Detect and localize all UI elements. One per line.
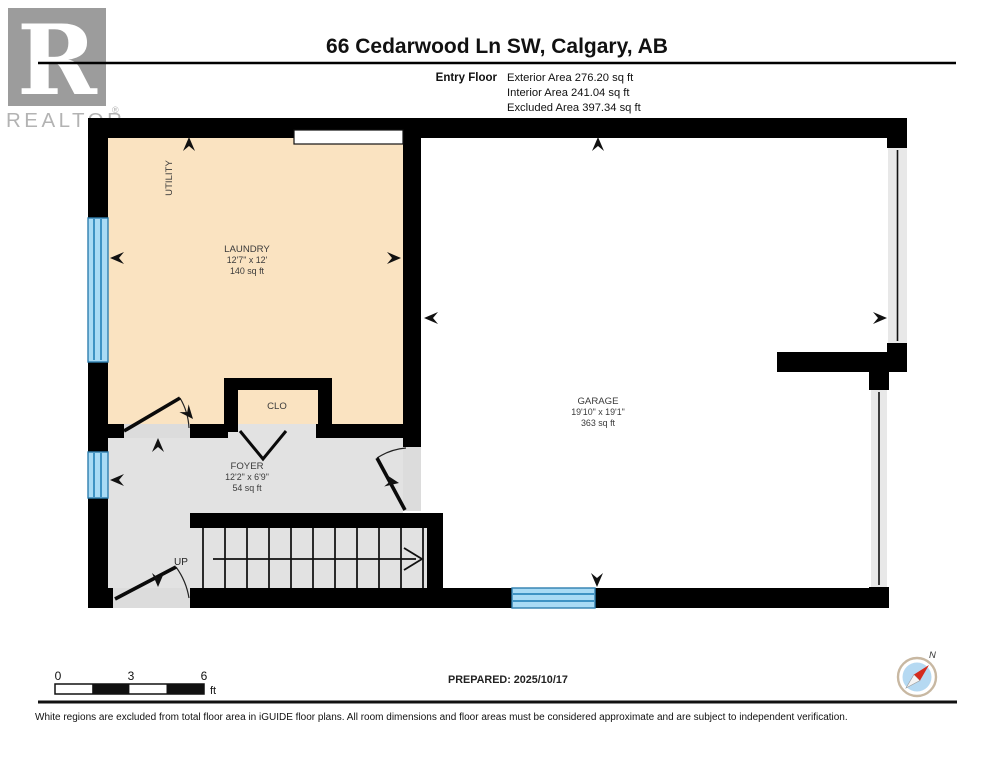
compass: N — [898, 650, 936, 696]
scale-tick-6: 6 — [201, 669, 208, 683]
room-area-garage: 363 sq ft — [581, 418, 616, 428]
excluded-area-label: Excluded Area 397.34 sq ft — [507, 102, 642, 114]
wall-stairs-top — [190, 513, 443, 528]
registered-mark: ® — [112, 105, 119, 115]
wall-bottom-right-corner — [869, 587, 889, 608]
interior-area-label: Interior Area 241.04 sq ft — [507, 87, 630, 99]
wall-left-upper — [88, 118, 108, 218]
scale-tick-3: 3 — [128, 669, 135, 683]
wall-bottom-b — [190, 588, 512, 608]
room-area-laundry: 140 sq ft — [230, 266, 265, 276]
page-title: 66 Cedarwood Ln SW, Calgary, AB — [326, 35, 668, 58]
room-dims-foyer: 12'2" x 6'9" — [225, 472, 269, 482]
wall-right-top-stub — [887, 118, 907, 148]
scale-tick-0: 0 — [55, 669, 62, 683]
realtor-logo: R REALTOR ® — [6, 4, 125, 132]
compass-north-label: N — [929, 650, 936, 661]
wall-niche — [294, 130, 403, 144]
wall-jog-stub — [869, 372, 889, 390]
room-label-closet: CLO — [267, 401, 287, 412]
realtor-logo-letter: R — [17, 4, 98, 117]
floorplan-drawing: UTILITY LAUNDRY 12'7" x 12' 140 sq ft CL… — [88, 118, 907, 608]
wall-left-mid — [88, 360, 108, 452]
room-label-laundry: LAUNDRY — [224, 244, 270, 255]
window-left-upper — [88, 218, 108, 362]
prepared-date: PREPARED: 2025/10/17 — [448, 674, 568, 686]
wall-stairs-right — [427, 513, 443, 608]
wall-bottom-c — [595, 588, 871, 608]
exterior-area-label: Exterior Area 276.20 sq ft — [507, 72, 634, 84]
scale-unit-label: ft — [210, 685, 216, 697]
wall-closet-right — [318, 378, 332, 432]
floorplan-canvas: R REALTOR ® 66 Cedarwood Ln SW, Calgary,… — [0, 0, 993, 768]
wall-closet-left — [224, 378, 238, 432]
floorplan-page: R REALTOR ® 66 Cedarwood Ln SW, Calgary,… — [0, 0, 993, 768]
floor-label: Entry Floor — [436, 72, 498, 84]
disclaimer-text: White regions are excluded from total fl… — [35, 712, 848, 723]
wall-garage-jog — [777, 352, 907, 372]
room-label-garage: GARAGE — [577, 396, 618, 407]
laundry-room-fill — [108, 138, 403, 438]
wall-laundry-bottom-a — [108, 424, 124, 438]
room-dims-garage: 19'10" x 19'1" — [571, 407, 625, 417]
entry-door-threshold — [113, 588, 190, 608]
room-label-foyer: FOYER — [230, 461, 263, 472]
garage-door-threshold — [403, 447, 421, 511]
wall-bottom-a — [88, 588, 113, 608]
room-dims-laundry: 12'7" x 12' — [227, 255, 268, 265]
wall-laundry-bottom-b — [190, 424, 228, 438]
wall-closet-top — [224, 378, 332, 390]
room-area-foyer: 54 sq ft — [232, 483, 262, 493]
window-bottom — [512, 588, 595, 608]
room-label-utility: UTILITY — [164, 160, 175, 196]
wall-laundry-right — [403, 138, 421, 447]
scale-bar: 0 3 6 ft — [55, 669, 216, 697]
window-left-lower — [88, 452, 108, 498]
stairs-up-label: UP — [174, 557, 188, 568]
wall-top — [88, 118, 907, 138]
